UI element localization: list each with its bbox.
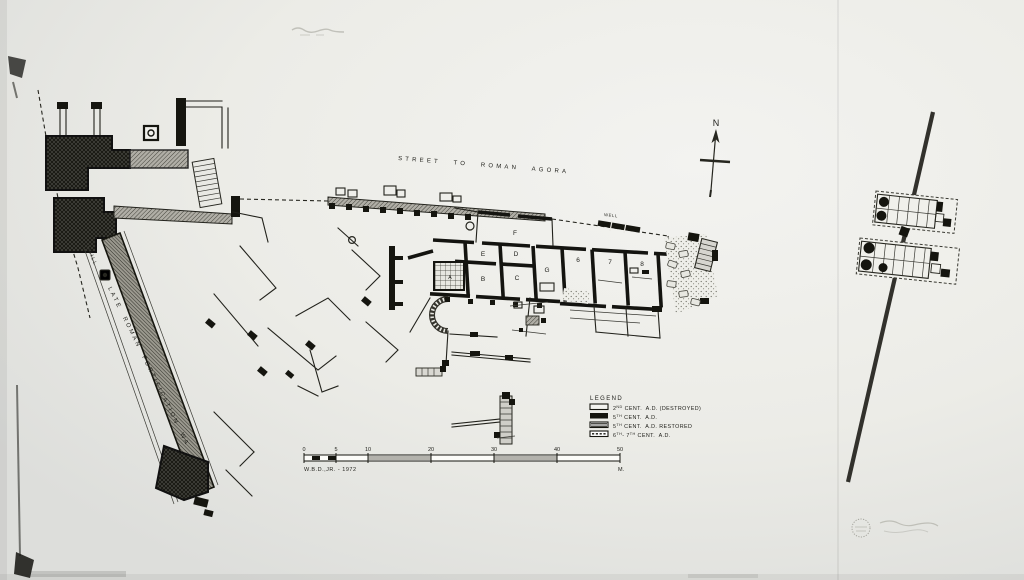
svg-text:5: 5: [334, 447, 337, 453]
scale-unit: M.: [618, 467, 625, 473]
room-label-f: F: [513, 230, 517, 237]
svg-text:50: 50: [617, 447, 623, 453]
room-label-e: E: [481, 251, 486, 258]
legend-item-1: 2ND CENT. A.D. (DESTROYED): [613, 405, 701, 412]
legend-swatch-dashed: [590, 431, 608, 437]
well-shaft-icon: [144, 126, 158, 140]
svg-text:40: 40: [554, 447, 560, 453]
black-wall-segment: [176, 98, 186, 146]
svg-text:10: 10: [365, 447, 371, 453]
paper-left-edge: [0, 0, 7, 580]
legend-swatch-striped: [590, 422, 608, 428]
legend-swatch-solid: [590, 413, 608, 419]
room-label-7: 7: [608, 259, 612, 266]
room-label-6: 6: [576, 257, 580, 264]
drafter-signature: W.B.D.,JR. - 1972: [304, 467, 357, 473]
svg-text:30: 30: [491, 447, 497, 453]
room-label-a: A: [448, 275, 452, 281]
paper-bottom-edge: [0, 574, 1024, 580]
legend-item-3: 5TH CENT. A.D. RESTORED: [613, 423, 692, 430]
room-label-b: B: [481, 276, 485, 283]
mill-icon: [100, 270, 110, 280]
room-label-g: G: [544, 267, 549, 274]
north-label: N: [713, 118, 720, 128]
svg-text:20: 20: [428, 447, 434, 453]
scanned-site-plan: MILL LATE ROMAN FORTIFICATION WALL: [0, 0, 1024, 580]
legend-title: LEGEND: [590, 396, 623, 402]
thick-house-wall: [389, 246, 395, 310]
plan-drawing: MILL LATE ROMAN FORTIFICATION WALL: [0, 0, 1024, 580]
room-label-c: C: [515, 275, 520, 282]
room-label-d: D: [514, 251, 519, 258]
legend-swatch-outline: [590, 404, 608, 410]
legend-item-4: 6TH- 7TH CENT. A.D.: [613, 432, 671, 439]
svg-text:0: 0: [302, 447, 305, 453]
wall-arm: [130, 150, 188, 168]
paper-background: [0, 0, 1024, 580]
room-label-8: 8: [640, 261, 644, 268]
